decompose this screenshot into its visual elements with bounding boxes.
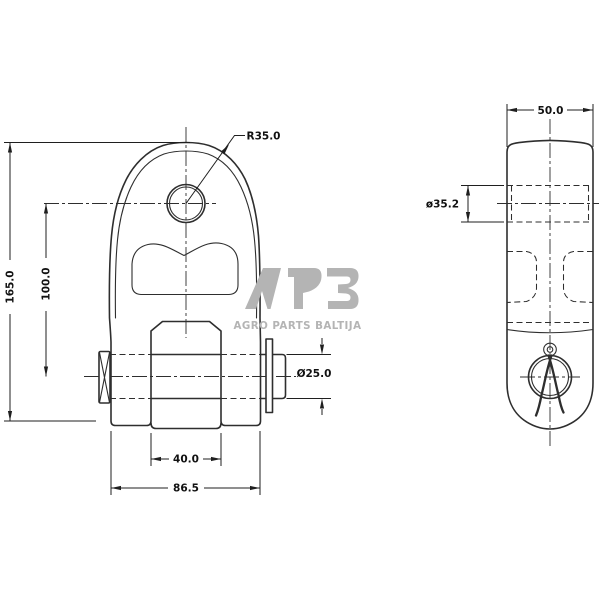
arrowhead [320, 345, 324, 355]
dim-hole-to-pin-label: 100.0 [41, 267, 53, 300]
dim-top-radius-label: R35.0 [247, 131, 281, 143]
arrowhead [8, 411, 12, 421]
front-view: 165.0 100.0 R35.0 Ø25.0 40.0 [4, 127, 331, 495]
dim-pin-diameter-label: Ø25.0 [297, 368, 332, 380]
extension-lines [4, 143, 190, 422]
apb-logo-letter-a [245, 268, 281, 309]
apb-logo-letter-b [327, 268, 359, 309]
dim-top-radius: R35.0 [186, 131, 281, 204]
dim-bore-diameter-label: ø35.2 [426, 199, 459, 211]
washer [266, 339, 273, 413]
side-pocket-hidden-right [564, 252, 594, 303]
arrowhead [320, 399, 324, 409]
arrowhead [466, 212, 470, 222]
side-view: 50.0 ø35.2 [426, 104, 599, 448]
arrowhead [44, 367, 48, 377]
watermark-subtitle: AGRO PARTS BALTIJA [234, 319, 362, 332]
arrowhead [211, 457, 221, 461]
dim-overall-height-label: 165.0 [5, 270, 17, 303]
slot-bottom-edge [151, 423, 221, 429]
arrowhead [8, 143, 12, 153]
arrowhead [583, 108, 593, 112]
front-pocket [132, 243, 238, 295]
arrowhead [151, 457, 161, 461]
dim-jaw-opening: 40.0 [151, 433, 221, 466]
arrowhead [111, 486, 121, 490]
dim-side-width-label: 50.0 [538, 105, 564, 117]
arrowhead [44, 204, 48, 214]
drawing-canvas: 165.0 100.0 R35.0 Ø25.0 40.0 [0, 0, 600, 600]
technical-drawing: 165.0 100.0 R35.0 Ø25.0 40.0 [0, 0, 600, 600]
side-pocket-hidden-left [507, 252, 537, 303]
arrowhead [250, 486, 260, 490]
apb-logo [245, 268, 359, 309]
watermark: AGRO PARTS BALTIJA [234, 268, 362, 332]
dim-pin-diameter: Ø25.0 [287, 338, 332, 415]
dim-hole-to-pin: 100.0 [41, 204, 53, 377]
dim-overall-width-label: 86.5 [173, 483, 199, 495]
arrowhead [507, 108, 517, 112]
leader-line [186, 136, 245, 204]
dim-jaw-opening-label: 40.0 [173, 454, 199, 466]
dim-overall-height: 165.0 [4, 143, 190, 422]
dim-bore-diameter: ø35.2 [426, 186, 504, 223]
arrowhead [466, 186, 470, 196]
apb-logo-letter-p [288, 268, 322, 309]
